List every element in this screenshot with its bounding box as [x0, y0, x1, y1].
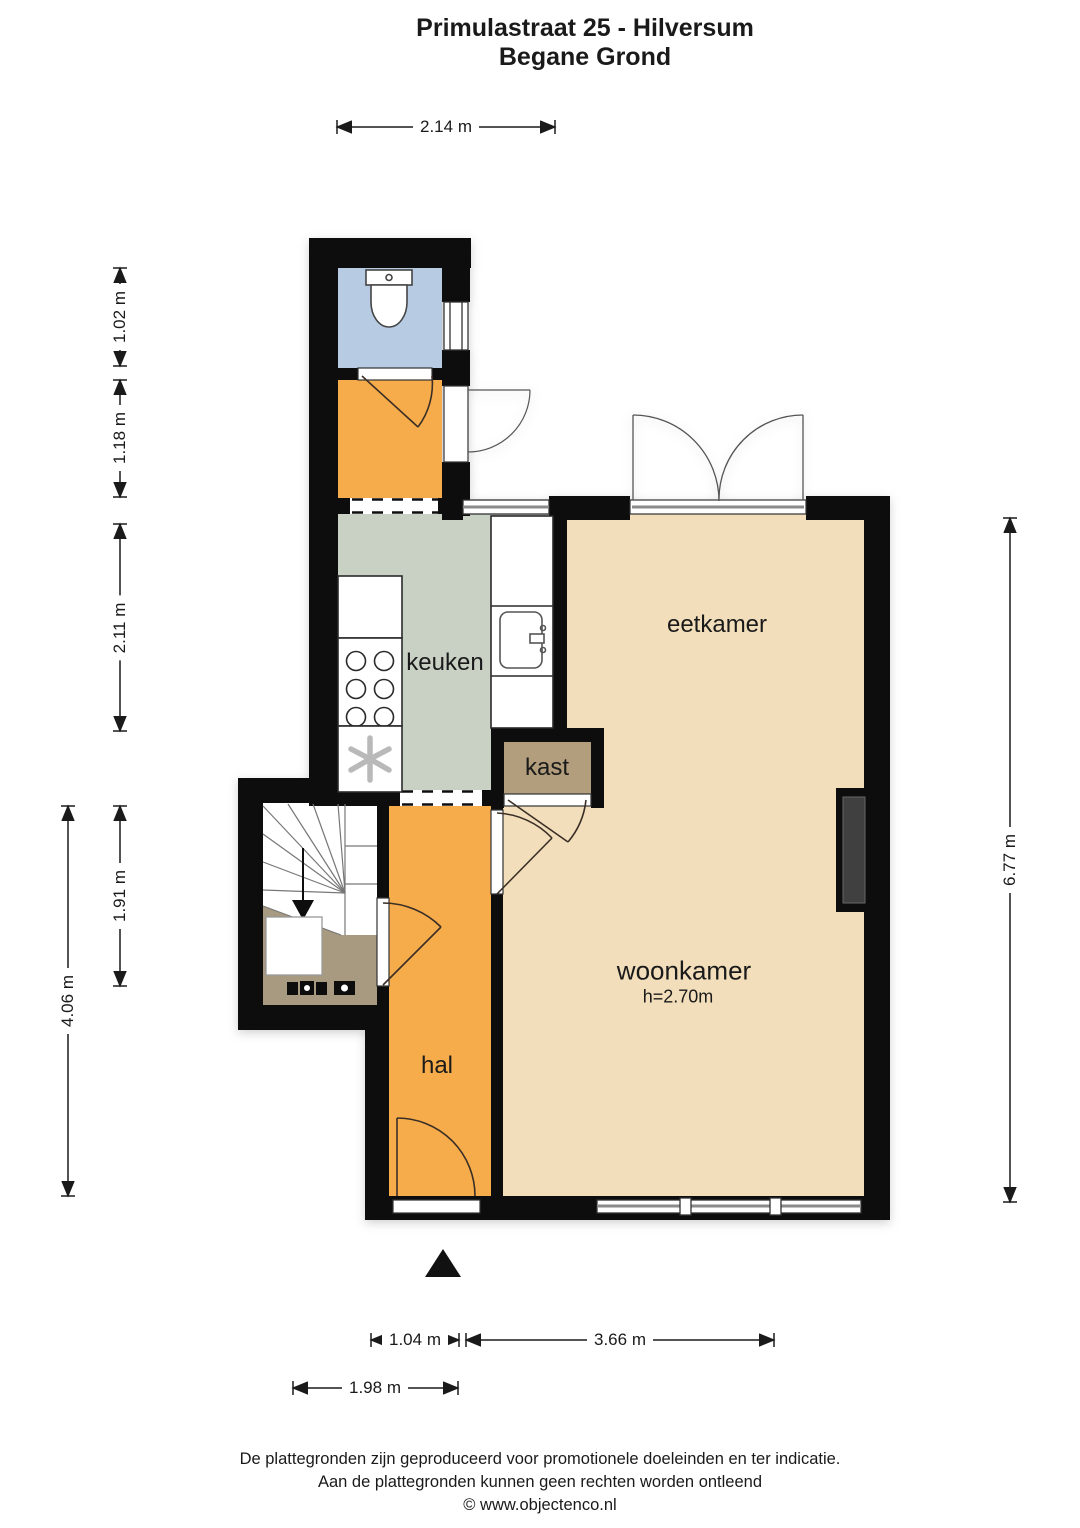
building [238, 238, 890, 1220]
kitchen-hall-opening [400, 790, 482, 806]
meter-cupboard-unit [266, 917, 322, 975]
vestibule-floor [338, 380, 442, 498]
vestibule-kitchen-opening [350, 498, 438, 514]
french-doors [630, 415, 806, 514]
chimney-breast [836, 788, 874, 912]
room-label-kast: kast [525, 754, 569, 782]
dimension-left-5: 4.06 m [57, 968, 79, 1034]
room-label-eetkamer: eetkamer [667, 611, 767, 639]
kitchen-counter-right [491, 516, 553, 728]
meter-icons [287, 981, 355, 995]
room-label-woonkamer: woonkamer [617, 956, 751, 987]
dimension-left-2: 1.18 m [109, 405, 131, 471]
dimension-left-3: 2.11 m [109, 596, 131, 661]
footer-disclaimer: De plattegronden zijn geproduceerd voor … [0, 1448, 1080, 1517]
kitchen-counter-left [338, 576, 402, 792]
back-door [444, 386, 530, 462]
dimension-right: 6.77 m [999, 827, 1021, 893]
footer-line-1: De plattegronden zijn geproduceerd voor … [0, 1448, 1080, 1471]
livingroom-window [597, 1198, 861, 1215]
kitchen-window [463, 500, 549, 514]
dimension-left-1: 1.02 m [109, 284, 131, 350]
room-label-keuken: keuken [406, 649, 483, 677]
fan-unit-icon [338, 726, 402, 792]
stove-icon [338, 638, 402, 727]
dimension-bottom-3: 1.98 m [342, 1377, 408, 1399]
dimension-left-4: 1.91 m [109, 863, 131, 929]
footer-line-2: Aan de plattegronden kunnen geen rechten… [0, 1471, 1080, 1494]
hall-floor [389, 806, 491, 1196]
room-label-woonkamer-height: h=2.70m [643, 987, 714, 1008]
dimension-bottom-1: 1.04 m [382, 1329, 448, 1351]
dimension-bottom-2: 3.66 m [587, 1329, 653, 1351]
dimension-top: 2.14 m [413, 116, 479, 138]
room-label-hal: hal [421, 1052, 453, 1080]
toilet-window [444, 302, 468, 350]
entrance-arrow-icon [425, 1249, 461, 1277]
footer-credit: © www.objectenco.nl [0, 1494, 1080, 1517]
floorplan-page: { "title": { "line1": "Primulastraat 25 … [0, 0, 1080, 1528]
